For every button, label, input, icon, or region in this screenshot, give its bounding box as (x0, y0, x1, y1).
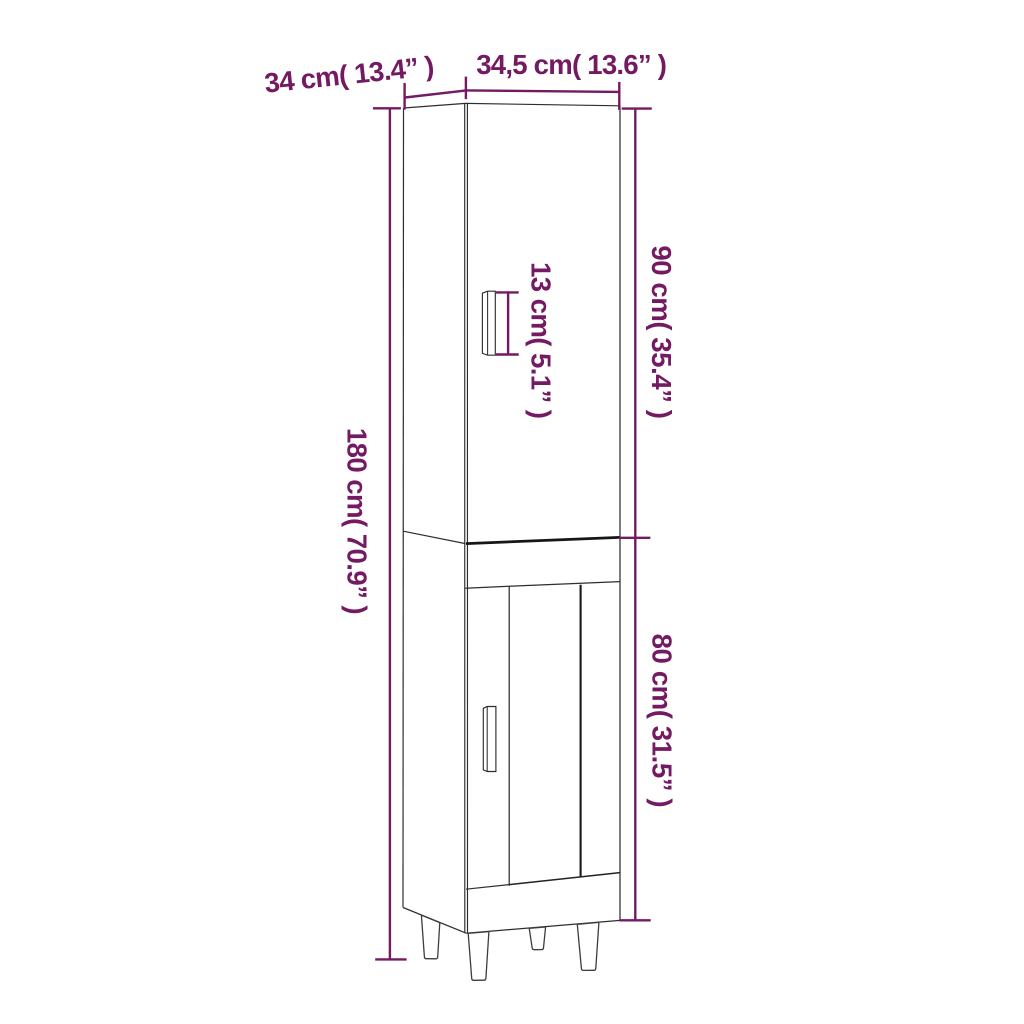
svg-text:34,5 cm( 13.6” ): 34,5 cm( 13.6” ) (476, 49, 667, 80)
svg-text:13 cm( 5.1” ): 13 cm( 5.1” ) (526, 262, 557, 419)
svg-text:90 cm( 35.4” ): 90 cm( 35.4” ) (646, 245, 677, 419)
svg-text:180 cm( 70.9” ): 180 cm( 70.9” ) (342, 428, 373, 615)
svg-text:80 cm( 31.5” ): 80 cm( 31.5” ) (646, 634, 677, 808)
svg-text:34 cm( 13.4” ): 34 cm( 13.4” ) (263, 50, 436, 99)
